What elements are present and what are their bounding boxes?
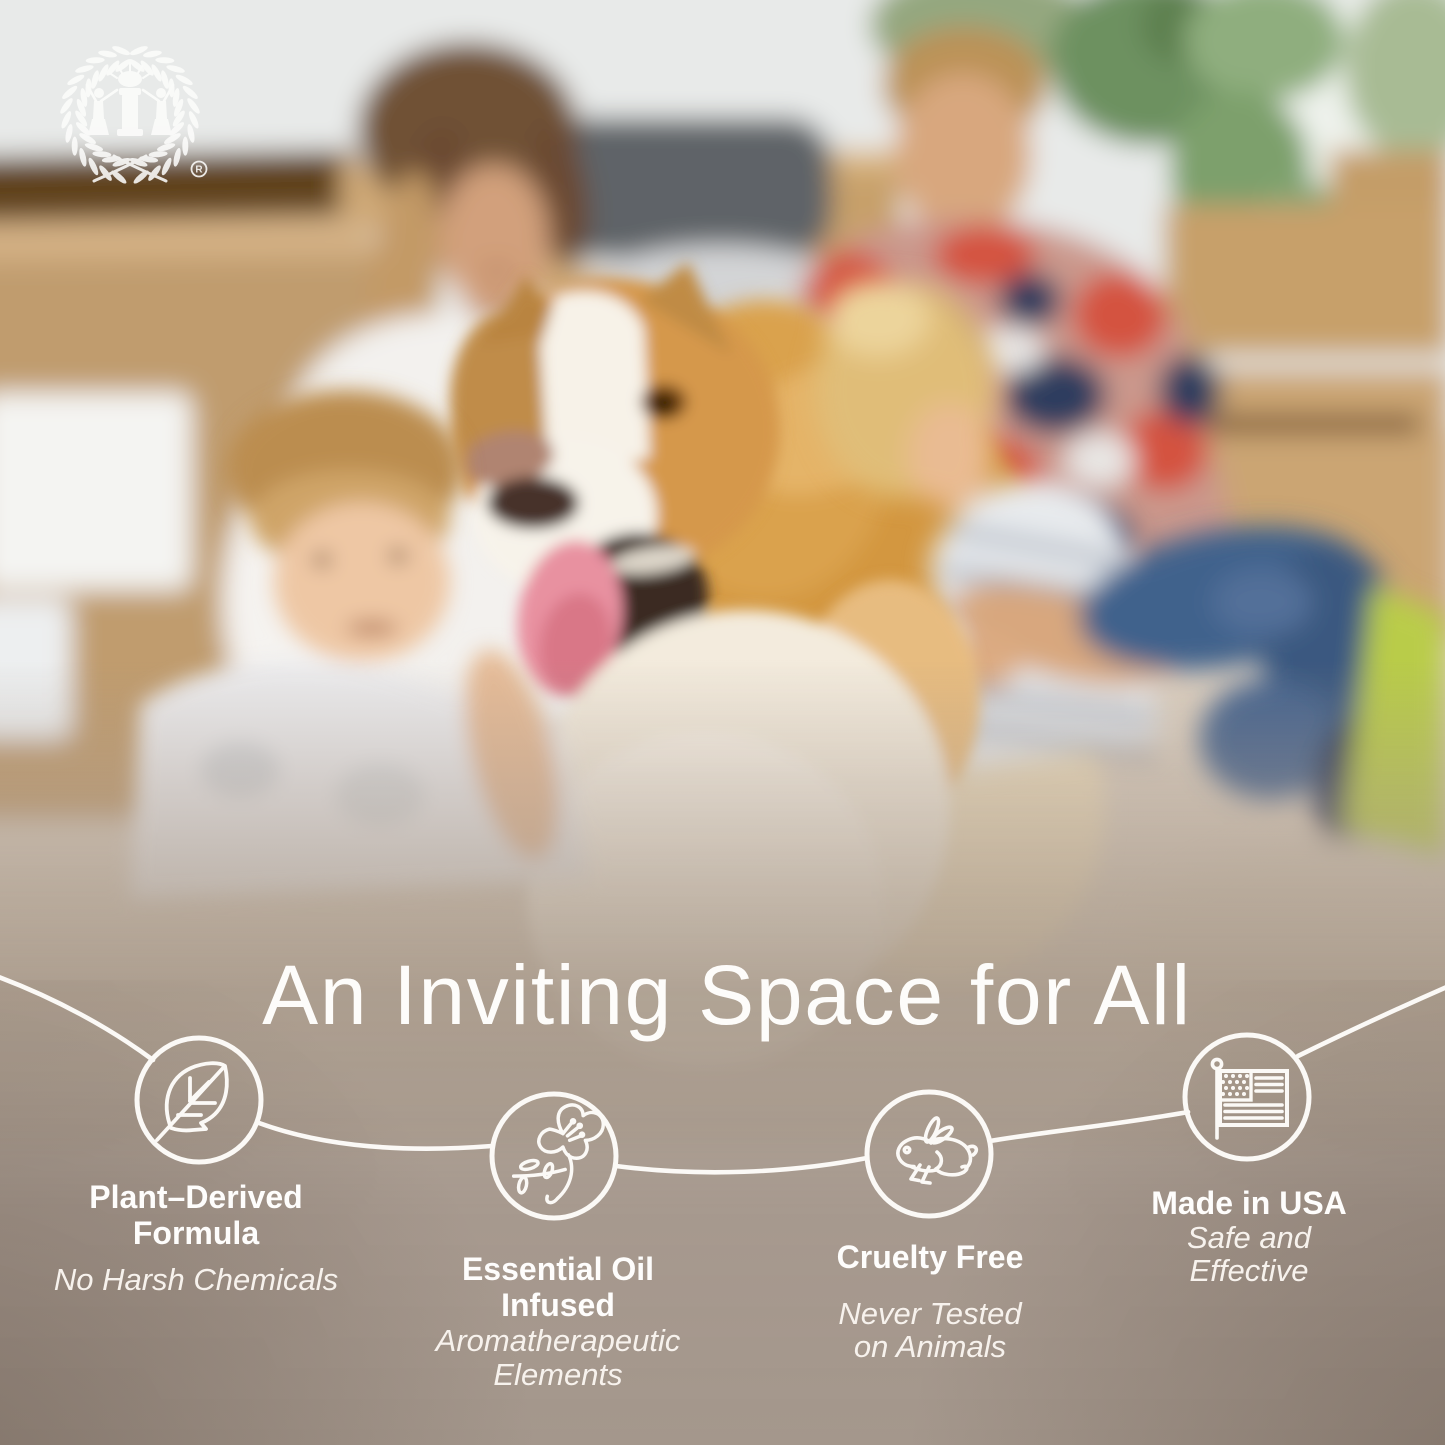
svg-text:An Inviting Space for All: An Inviting Space for All xyxy=(262,948,1192,1042)
svg-text:Effective: Effective xyxy=(1190,1253,1309,1288)
svg-text:R: R xyxy=(195,165,203,176)
svg-text:Plant–Derived: Plant–Derived xyxy=(89,1179,302,1215)
svg-text:Made in USA: Made in USA xyxy=(1151,1185,1347,1221)
svg-text:No Harsh Chemicals: No Harsh Chemicals xyxy=(54,1262,338,1297)
svg-text:Formula: Formula xyxy=(133,1215,259,1251)
svg-text:Elements: Elements xyxy=(493,1357,622,1392)
svg-text:Safe and: Safe and xyxy=(1187,1220,1313,1255)
svg-text:Infused: Infused xyxy=(501,1287,615,1323)
svg-text:Never Tested: Never Tested xyxy=(838,1296,1023,1331)
svg-text:Essential Oil: Essential Oil xyxy=(462,1251,654,1287)
svg-text:Aromatherapeutic: Aromatherapeutic xyxy=(434,1323,681,1358)
svg-text:on Animals: on Animals xyxy=(854,1329,1006,1364)
svg-text:Cruelty Free: Cruelty Free xyxy=(837,1239,1024,1275)
